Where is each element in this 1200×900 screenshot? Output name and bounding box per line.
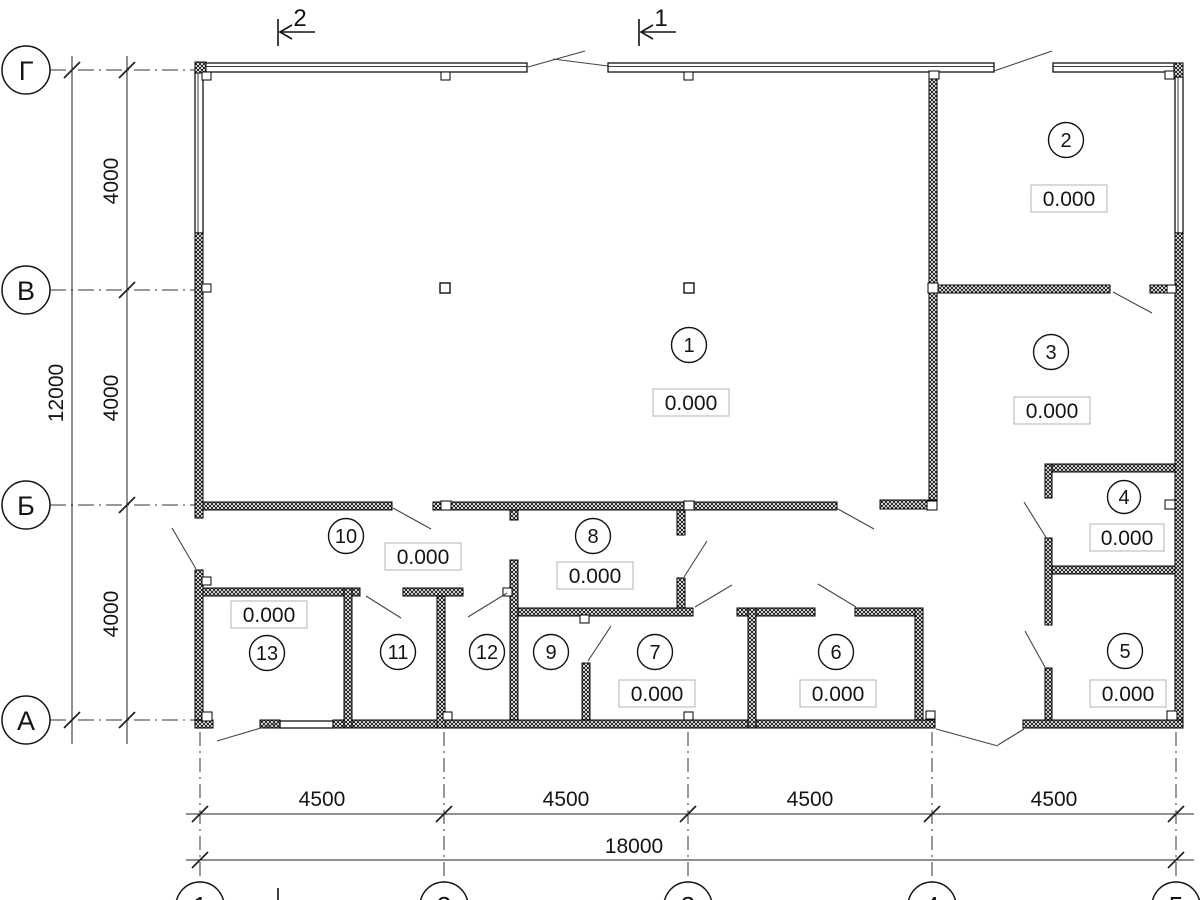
door-leaf-room7 <box>695 585 732 607</box>
door-leaf-bottom-left-exterior <box>217 722 281 741</box>
wall-stub-513-upper <box>510 510 518 520</box>
wall-room4-5-divider <box>1052 566 1175 574</box>
elevation-7: 0.000 <box>631 683 684 706</box>
door-leaf-entrance-a <box>936 729 998 746</box>
axis-number-4: 4 <box>925 891 939 900</box>
dim-18000: 18000 <box>605 835 663 858</box>
dim-4500-1: 4500 <box>299 788 346 811</box>
dim-4000-bottom: 4000 <box>100 591 123 638</box>
elevation-3: 0.000 <box>1026 400 1079 423</box>
elevation-6: 0.000 <box>812 683 865 706</box>
opening-break-top-b <box>553 59 608 66</box>
elevation-2: 0.000 <box>1043 188 1096 211</box>
wall-row-v-stub <box>1150 285 1167 293</box>
wall-corner-top-left <box>195 62 206 73</box>
floor-plan-canvas: Г В Б А 1 2 3 4 5 <box>0 0 1200 900</box>
wall-room5-left-lower <box>1045 668 1052 720</box>
wall-room13-top <box>203 588 360 596</box>
room-number-12: 12 <box>476 642 498 664</box>
door-leaf-room9 <box>588 626 611 661</box>
wall-room11-cap <box>403 588 463 596</box>
dim-4000-mid: 4000 <box>100 375 123 422</box>
room-number-1: 1 <box>683 335 694 357</box>
axis-letter-v: В <box>17 276 35 306</box>
section-mark-2-top: 2 <box>278 5 315 46</box>
elevation-8: 0.000 <box>569 565 622 588</box>
room-label-3: 3 0.000 <box>1014 335 1090 425</box>
section-label-1: 1 <box>654 5 667 32</box>
dim-4500-4: 4500 <box>1031 788 1078 811</box>
room-labels: 1 0.000 2 0.000 3 0.000 4 0.000 5 <box>231 123 1166 708</box>
axis-number-3: 3 <box>681 891 695 900</box>
room-number-13: 13 <box>256 643 278 665</box>
door-leaf-room12 <box>468 593 507 617</box>
room-number-2: 2 <box>1060 130 1071 152</box>
elevation-10: 0.000 <box>397 546 450 569</box>
wall-stub-681-lower <box>677 578 685 609</box>
wall-room11-right <box>437 596 445 728</box>
door-leaf-hall-to-corridor8 <box>838 509 874 529</box>
wall-stub-681-upper <box>677 510 685 535</box>
dimensions: 4000 4000 4000 12000 4500 4500 4500 4500… <box>45 56 1194 868</box>
wall-corridor-seg1 <box>513 608 693 616</box>
window-top-1 <box>205 63 527 72</box>
wall-left-middle <box>195 233 203 518</box>
wall-bottom-right <box>1023 720 1183 728</box>
room-label-12: 12 <box>470 635 505 670</box>
room-number-6: 6 <box>830 642 841 664</box>
door-leaf-corridor8 <box>684 541 707 577</box>
wall-room7-right <box>748 608 756 728</box>
dim-4500-3: 4500 <box>787 788 834 811</box>
room-label-11: 11 <box>381 635 416 670</box>
elevation-1: 0.000 <box>665 392 718 415</box>
door-leaf-top-right <box>994 51 1052 71</box>
room-number-11: 11 <box>388 642 409 664</box>
dim-4000-top: 4000 <box>100 158 123 205</box>
wall-room6-right <box>915 608 923 720</box>
floor-plan-page: Г В Б А 1 2 3 4 5 <box>0 0 1200 900</box>
dim-12000: 12000 <box>45 364 68 422</box>
window-bottom <box>280 721 333 728</box>
window-right <box>1175 77 1183 233</box>
axis-number-2: 2 <box>437 891 451 900</box>
door-leaf-room5 <box>1025 631 1046 669</box>
axis-grid: Г В Б А 1 2 3 4 5 <box>2 46 1200 900</box>
wall-room13-right <box>344 588 352 728</box>
wall-room12-right <box>510 560 518 720</box>
wall-room4-left-lower <box>1045 538 1052 625</box>
axis-number-5: 5 <box>1169 891 1183 900</box>
wall-row-v-left <box>933 285 1110 293</box>
room-label-4: 4 0.000 <box>1090 481 1164 552</box>
wall-room9-right <box>582 663 590 720</box>
room-label-5: 5 0.000 <box>1090 634 1166 708</box>
wall-row-b-seg2 <box>433 502 837 510</box>
section-mark-1-top: 1 <box>639 5 676 46</box>
room-number-10: 10 <box>335 526 357 548</box>
wall-corner-top-right <box>1174 63 1183 77</box>
wall-room4-left-upper <box>1045 464 1052 498</box>
axis-number-1: 1 <box>193 891 207 900</box>
column-free-2 <box>684 283 694 293</box>
axis-letter-g: Г <box>19 56 34 86</box>
room-label-6: 6 0.000 <box>800 635 876 708</box>
wall-corridor-seg3 <box>855 608 922 616</box>
room-number-3: 3 <box>1045 342 1056 364</box>
room-label-10: 10 0.000 <box>329 519 462 571</box>
room-number-7: 7 <box>649 642 660 664</box>
section-marks: 2 1 <box>278 5 676 900</box>
door-leaf-room11 <box>366 596 401 618</box>
room-label-13: 0.000 13 <box>231 601 307 671</box>
room-number-8: 8 <box>587 526 598 548</box>
section-label-2: 2 <box>293 5 306 32</box>
door-leaf-entrance-b <box>998 729 1024 745</box>
wall-bottom-main <box>333 720 935 728</box>
room-label-8: 8 0.000 <box>557 519 633 590</box>
room-label-7: 7 0.000 <box>619 635 695 708</box>
door-leaf-hall-to-corridor10 <box>393 508 431 529</box>
dim-4500-2: 4500 <box>543 788 590 811</box>
window-left <box>195 71 203 233</box>
axis-letter-a: А <box>17 706 35 736</box>
room-label-9: 9 <box>534 635 569 670</box>
axis-letter-b: Б <box>17 491 35 521</box>
door-leaf-left-exterior <box>172 528 196 569</box>
wall-row-b-seg1 <box>203 502 392 510</box>
column-free-1 <box>440 283 450 293</box>
elevation-5: 0.000 <box>1102 683 1155 706</box>
room-number-4: 4 <box>1118 487 1129 509</box>
room-number-9: 9 <box>545 642 556 664</box>
wall-right <box>1175 233 1183 728</box>
room-label-1: 1 0.000 <box>653 328 729 417</box>
room-number-5: 5 <box>1119 641 1130 663</box>
wall-left-lower <box>195 570 203 728</box>
door-leaf-room6 <box>818 584 856 607</box>
room-label-2: 2 0.000 <box>1031 123 1107 213</box>
elevation-4: 0.000 <box>1101 527 1154 550</box>
door-leaf-room4 <box>1024 502 1047 539</box>
door-leaf-room3 <box>1113 292 1152 313</box>
window-top-3 <box>1053 63 1174 72</box>
wall-room4-top <box>1045 464 1175 472</box>
elevation-13: 0.000 <box>243 604 296 627</box>
